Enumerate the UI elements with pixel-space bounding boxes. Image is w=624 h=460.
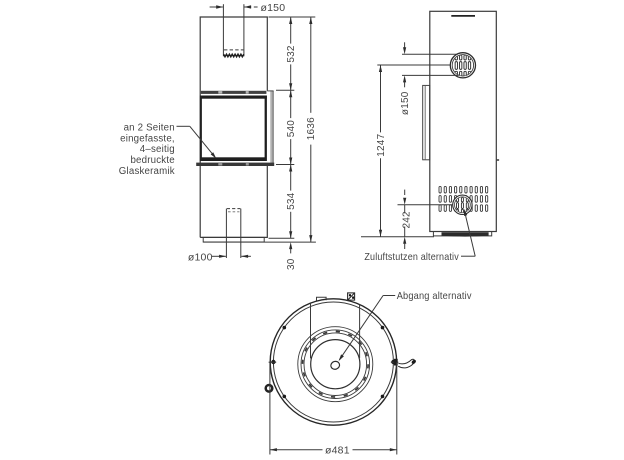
svg-text:an 2 Seiten: an 2 Seiten [124, 122, 175, 133]
svg-text:4–seitig: 4–seitig [140, 144, 175, 155]
svg-text:ø100: ø100 [188, 251, 213, 263]
svg-text:1636: 1636 [306, 117, 317, 140]
svg-text:1247: 1247 [376, 133, 387, 156]
svg-text:Glaskeramik: Glaskeramik [119, 166, 175, 177]
svg-text:bedruckte: bedruckte [130, 155, 174, 166]
svg-text:242: 242 [401, 211, 412, 229]
svg-text:ø481: ø481 [325, 444, 350, 456]
svg-text:Zuluftstutzen alternativ: Zuluftstutzen alternativ [364, 252, 459, 263]
svg-text:540: 540 [286, 120, 297, 138]
svg-text:eingefasste,: eingefasste, [120, 133, 175, 144]
svg-text:Abgang alternativ: Abgang alternativ [397, 291, 473, 302]
svg-text:30: 30 [286, 258, 297, 270]
svg-text:534: 534 [286, 192, 297, 210]
svg-text:532: 532 [286, 45, 297, 63]
svg-text:ø150: ø150 [400, 91, 411, 115]
svg-text:ø150: ø150 [261, 2, 286, 14]
